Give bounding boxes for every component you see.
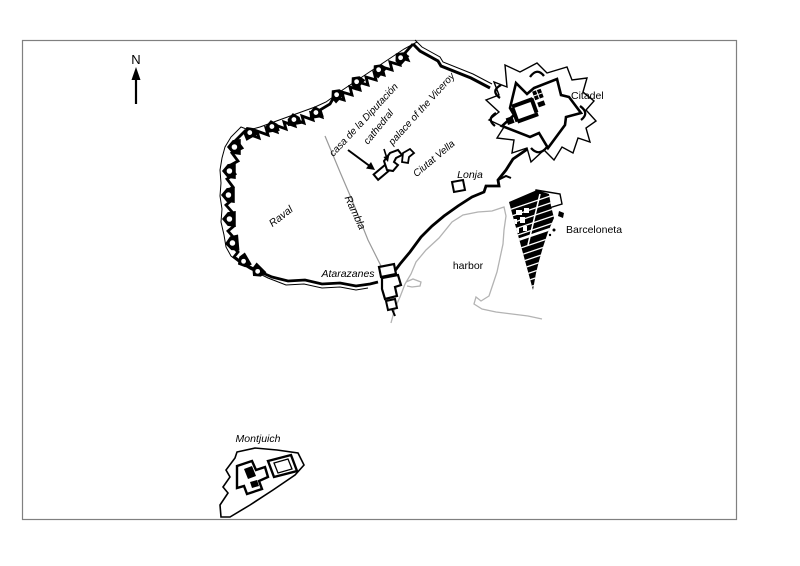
compass-label: N (131, 52, 140, 67)
label-lonja: Lonja (457, 169, 483, 181)
barcelona-fortifications-map: N (0, 0, 800, 566)
label-harbor: harbor (453, 260, 484, 272)
lonja-building (452, 180, 465, 192)
shore-speck (553, 229, 556, 232)
label-montjuich: Montjuich (236, 433, 281, 445)
shore-speck (549, 234, 551, 236)
label-barceloneta: Barceloneta (566, 224, 622, 236)
label-citadel: Citadel (571, 90, 604, 102)
map-svg: N (0, 0, 800, 566)
label-atarazanes: Atarazanes (320, 268, 375, 280)
map-frame (23, 41, 737, 520)
